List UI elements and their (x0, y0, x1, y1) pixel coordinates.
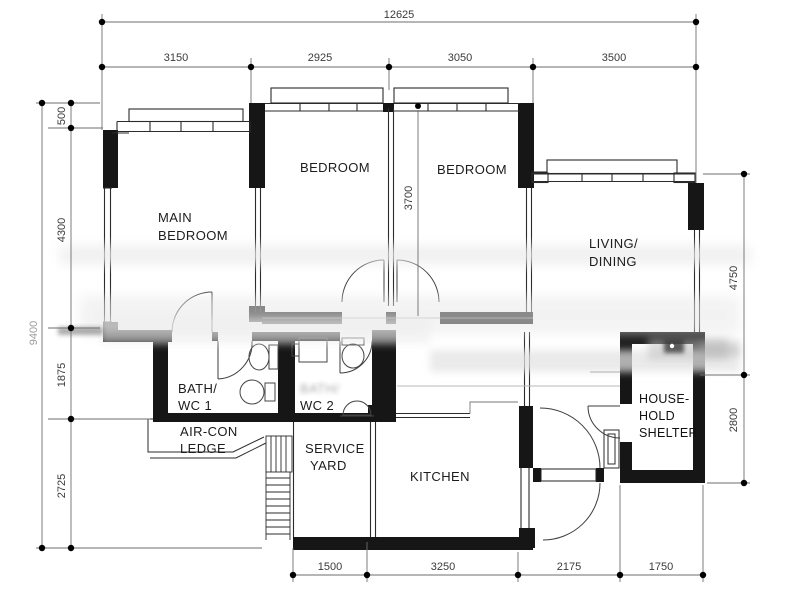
dim-bottom-segment-label: 3250 (431, 561, 455, 573)
floor-plan-page: 12625 3150 2925 3050 3500 9400 500 4300 … (0, 0, 791, 600)
dim-tick-dot (39, 100, 45, 106)
room-label-living-line2: DINING (589, 254, 637, 269)
floor-plan: 12625 3150 2925 3050 3500 9400 500 4300 … (0, 0, 791, 600)
dim-left-total-label: 9400 (28, 321, 40, 345)
wall-segment (293, 537, 533, 550)
dim-tick-dot (693, 64, 699, 70)
wall-segment (519, 406, 533, 468)
shelter-door-gap (620, 404, 633, 442)
dim-tick-dot (741, 171, 747, 177)
dim-bottom-segment-label: 1750 (649, 561, 673, 573)
door-hinge-block (533, 468, 541, 482)
dim-bottom-segment-label: 2175 (557, 561, 581, 573)
room-label-aircon-line2: LEDGE (180, 441, 226, 456)
dim-left-segment-label: 2725 (56, 474, 68, 498)
wall-segment (249, 103, 265, 188)
dim-tick-dot (99, 64, 105, 70)
dim-tick-dot (248, 64, 254, 70)
room-label-aircon-line1: AIR-CON (180, 424, 238, 439)
wall-segment (153, 335, 168, 419)
door-hinge-block (596, 468, 604, 482)
dim-tick-dot (68, 325, 74, 331)
room-label-living-line1: LIVING/ (589, 236, 638, 251)
wall-segment (153, 413, 396, 422)
room-label-shelter-line3: SHELTER (639, 426, 698, 440)
dim-left-segment-label: 500 (56, 107, 68, 125)
room-label-kitchen: KITCHEN (410, 469, 470, 484)
dim-top-segment-label: 3050 (448, 52, 472, 64)
dim-top-segment-label: 3150 (164, 52, 188, 64)
wall-segment (368, 405, 383, 422)
room-label-bath2-line1: BATH/ (300, 381, 339, 396)
dim-tick-dot (39, 545, 45, 551)
room-label-bedroom3: BEDROOM (437, 162, 507, 177)
dim-tick-dot (741, 480, 747, 486)
dim-right-segment-label: 4750 (728, 266, 740, 290)
room-label-shelter-line1: HOUSE- (639, 392, 689, 406)
wall-segment (688, 183, 704, 230)
dim-tick-dot (415, 103, 421, 109)
dim-left-segment-label: 1875 (56, 363, 68, 387)
room-label-bath2-line2: WC 2 (300, 398, 334, 413)
dim-right-segment-label: 2800 (728, 408, 740, 432)
room-label-bath1-line2: WC 1 (178, 398, 212, 413)
dim-tick-dot (617, 572, 623, 578)
dim-tick-dot (700, 572, 706, 578)
dim-tick-dot (515, 572, 521, 578)
dim-tick-dot (99, 19, 105, 25)
room-label-bath1-line1: BATH/ (178, 381, 217, 396)
dim-tick-dot (68, 125, 74, 131)
room-label-serviceyard-line2: YARD (310, 458, 347, 473)
dim-tick-dot (68, 416, 74, 422)
dim-top-segment-label: 3500 (602, 52, 626, 64)
dim-left-segment-label: 4300 (56, 218, 68, 242)
wall-segment (103, 130, 118, 188)
room-label-serviceyard-line1: SERVICE (305, 441, 365, 456)
dim-tick-dot (741, 372, 747, 378)
dim-tick-dot (290, 572, 296, 578)
dim-bedroom-depth-label: 3700 (403, 186, 415, 210)
dim-tick-dot (693, 19, 699, 25)
dim-top-segment-label: 2925 (308, 52, 332, 64)
room-label-main-bedroom-line2: BEDROOM (158, 228, 228, 243)
dim-tick-dot (386, 64, 392, 70)
dim-tick-dot (364, 572, 370, 578)
room-label-main-bedroom-line1: MAIN (158, 210, 192, 225)
dim-tick-dot (68, 545, 74, 551)
dim-tick-dot (530, 64, 536, 70)
room-label-shelter-line2: HOLD (639, 409, 675, 423)
dim-tick-dot (68, 100, 74, 106)
dim-top-total-label: 12625 (384, 9, 415, 21)
room-label-bedroom2: BEDROOM (300, 160, 370, 175)
dim-bottom-segment-label: 1500 (318, 561, 342, 573)
